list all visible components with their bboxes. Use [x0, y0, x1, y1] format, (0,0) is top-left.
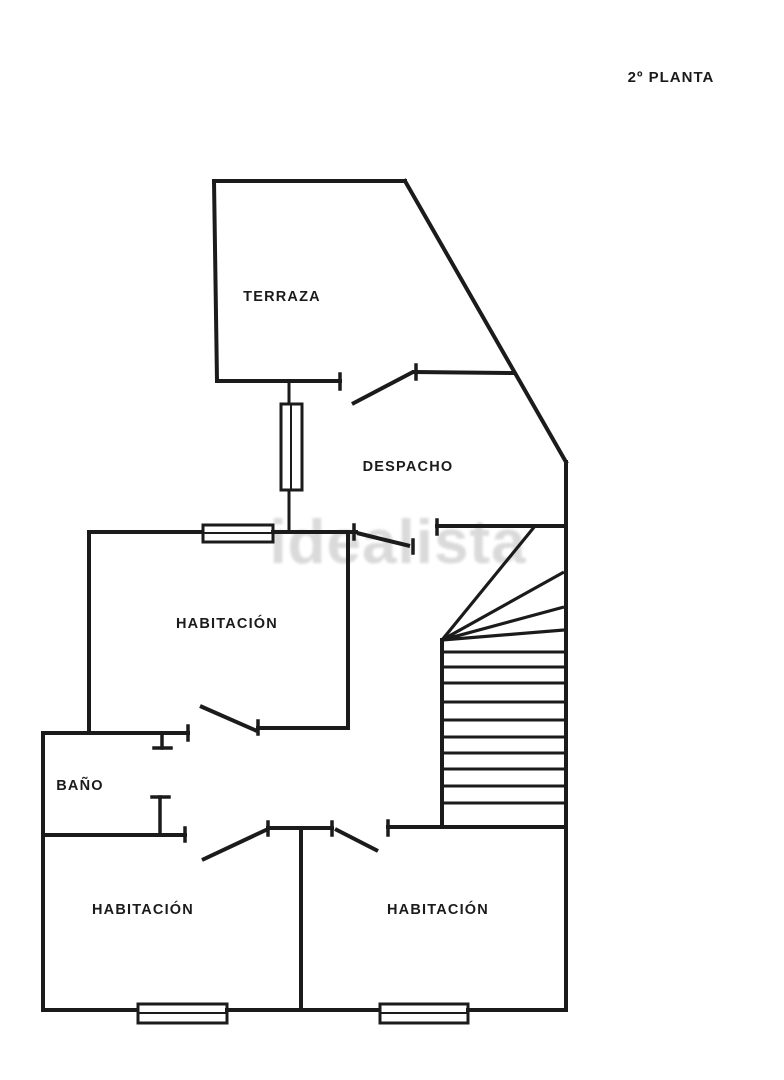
label-habitacion-derecha: HABITACIÓN — [387, 900, 489, 918]
terraza-walls — [214, 181, 566, 462]
label-bano: BAÑO — [56, 776, 104, 794]
label-despacho: DESPACHO — [363, 459, 454, 475]
label-habitacion-izquierda: HABITACIÓN — [92, 900, 194, 918]
door-leaf — [352, 372, 413, 404]
wall — [414, 372, 513, 373]
stair-winder — [442, 572, 564, 640]
bano-walls — [43, 733, 185, 1010]
hallway-wall — [202, 821, 566, 860]
door-leaf — [202, 829, 268, 860]
label-terraza: TERRAZA — [243, 289, 321, 305]
floor-title: 2º PLANTA — [628, 69, 715, 86]
floorplan-page: 2º PLANTA idealista — [0, 0, 784, 1080]
label-habitacion-media: HABITACIÓN — [176, 614, 278, 632]
wall-diagonal — [405, 181, 566, 462]
door-leaf — [335, 829, 378, 851]
door-terraza-despacho — [352, 365, 513, 404]
bottom-wall — [43, 1004, 566, 1023]
floorplan-drawing: 2º PLANTA idealista — [0, 0, 784, 1080]
door-leaf — [200, 706, 257, 731]
wall — [214, 181, 217, 381]
